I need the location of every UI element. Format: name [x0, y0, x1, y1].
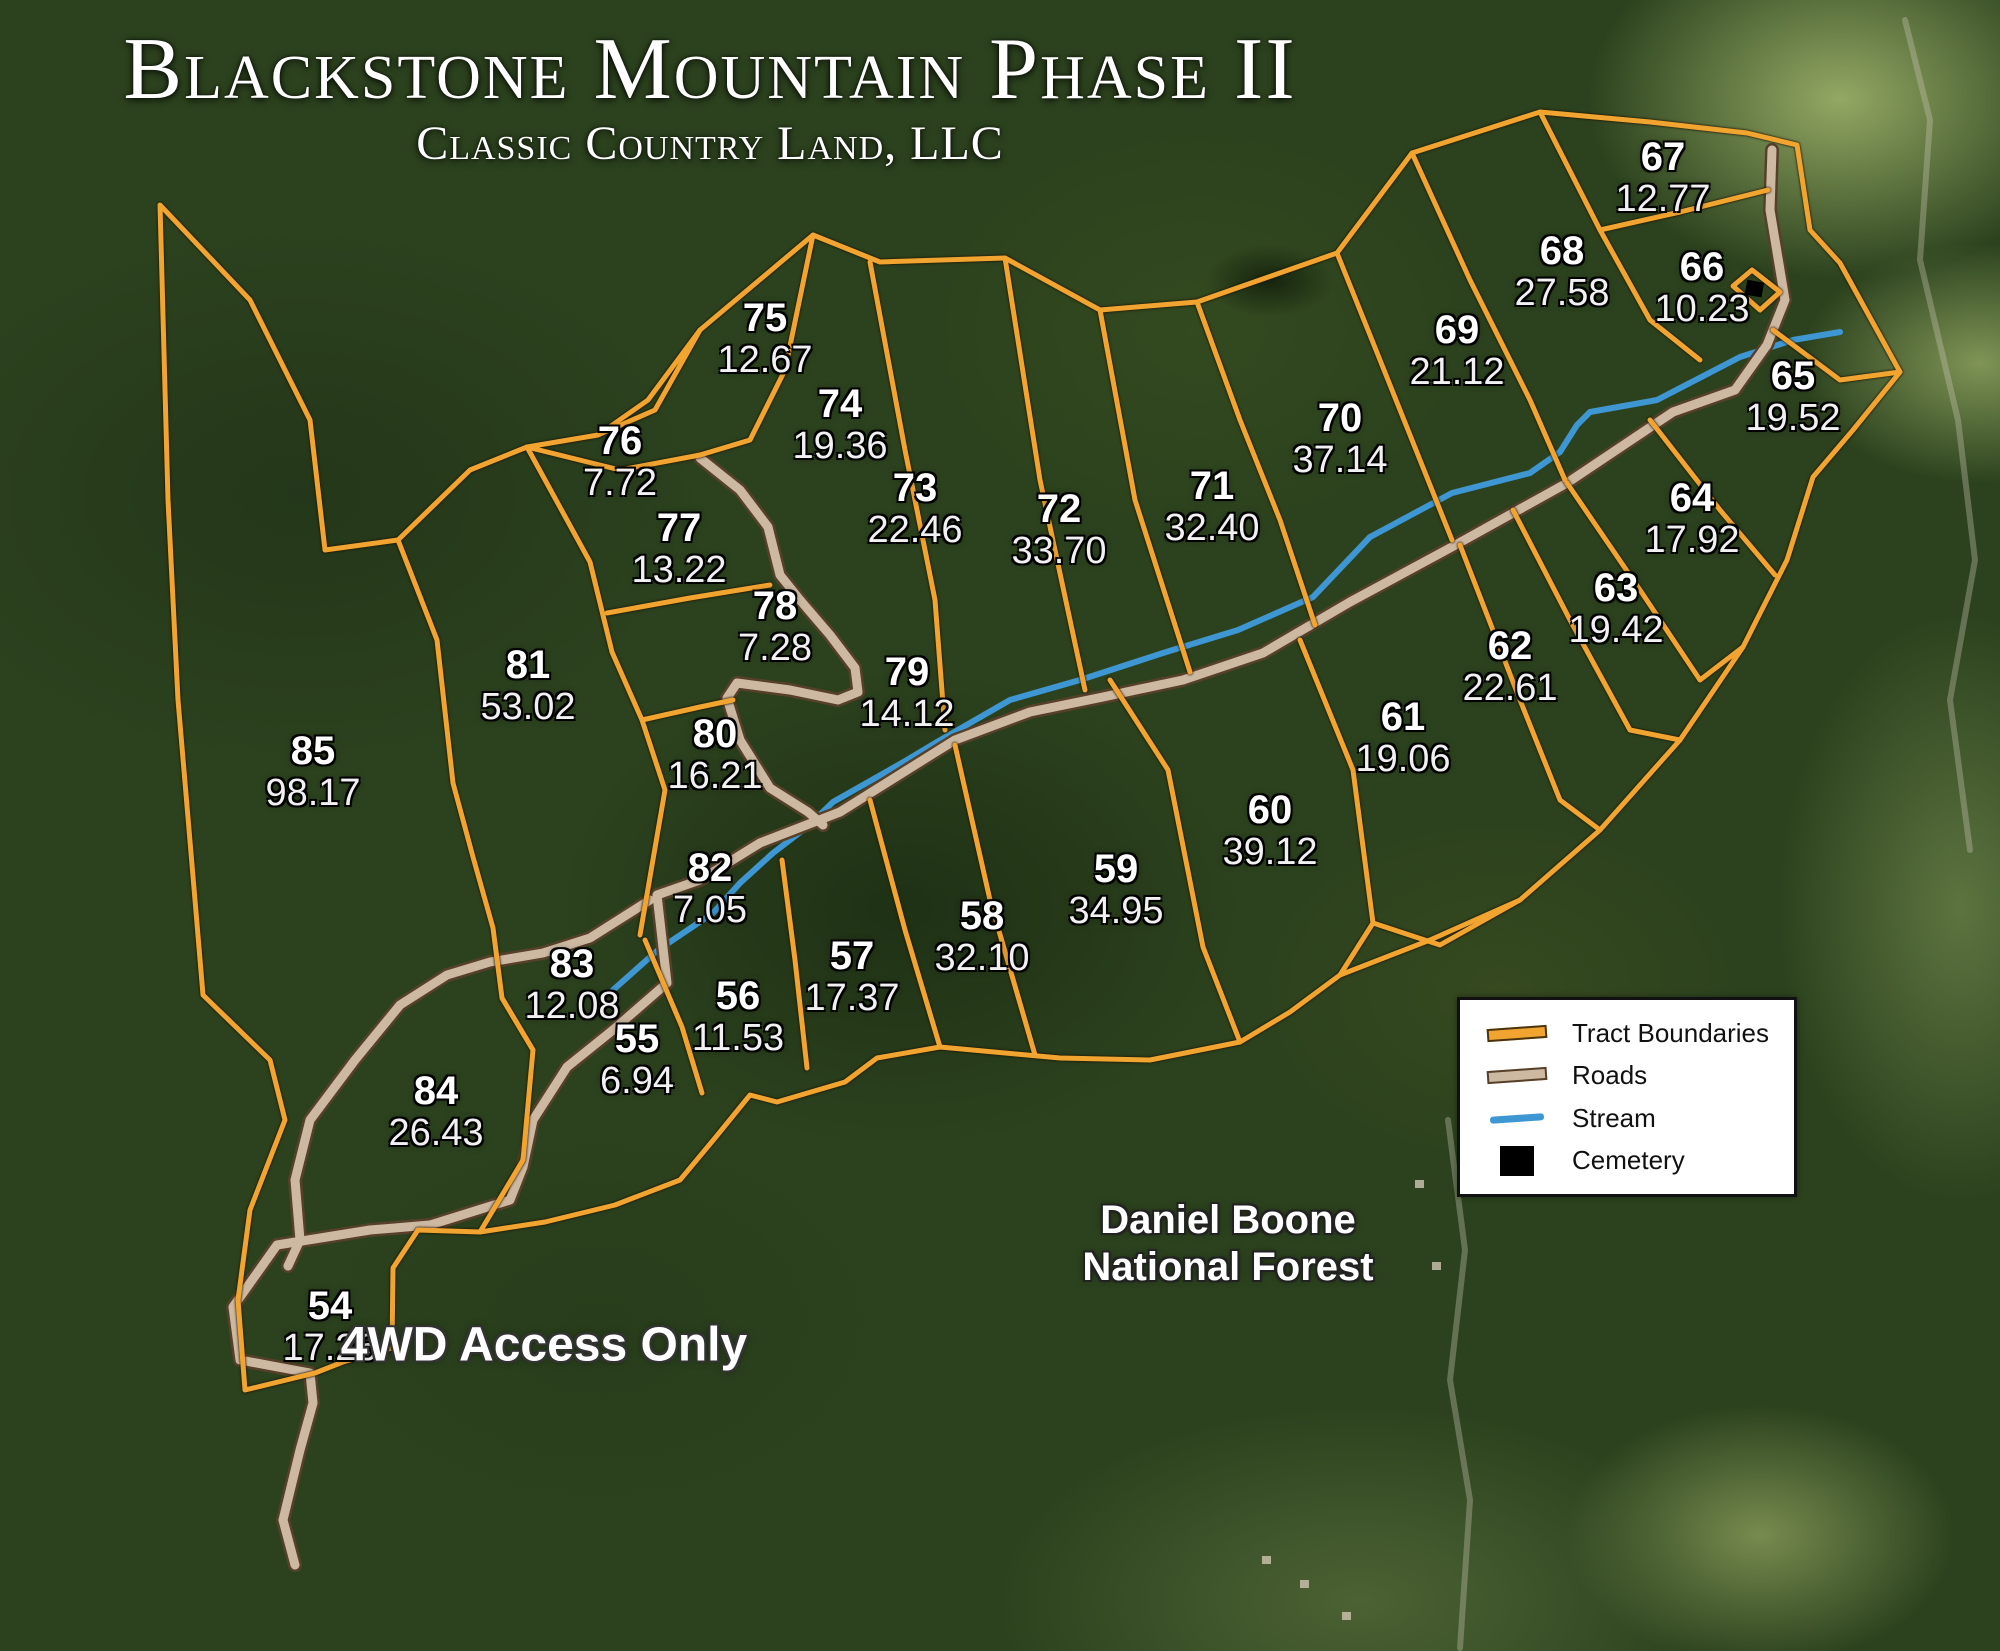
tract-label-72: 7233.70	[1011, 487, 1106, 573]
tract-label-77: 7713.22	[631, 506, 726, 592]
tract-label-79: 7914.12	[859, 650, 954, 736]
building-dot	[1262, 1556, 1271, 1564]
map-canvas: Blackstone Mountain Phase II Classic Cou…	[0, 0, 2000, 1651]
tract-label-85: 8598.17	[265, 729, 360, 815]
tract-label-84: 8426.43	[388, 1069, 483, 1155]
tract-label-80: 8016.21	[667, 712, 762, 798]
legend-label: Stream	[1572, 1103, 1656, 1134]
tract-label-71: 7132.40	[1164, 464, 1259, 550]
tract-label-70: 7037.14	[1292, 396, 1387, 482]
tract-label-68: 6827.58	[1514, 229, 1609, 315]
map-subtitle: Classic Country Land, LLC	[123, 116, 1296, 171]
tract-label-58: 5832.10	[934, 894, 1029, 980]
tract-label-69: 6921.12	[1409, 308, 1504, 394]
road-line-icon	[1486, 1069, 1548, 1082]
national-forest-line1: Daniel Boone	[1082, 1197, 1373, 1244]
legend-label: Cemetery	[1572, 1145, 1685, 1176]
tract-label-83: 8312.08	[524, 942, 619, 1028]
legend-row-stream: Stream	[1486, 1103, 1786, 1134]
national-forest-label: Daniel Boone National Forest	[1082, 1197, 1373, 1291]
legend-label: Tract Boundaries	[1572, 1018, 1769, 1049]
tract-label-78: 787.28	[738, 584, 812, 670]
tract-label-61: 6119.06	[1355, 695, 1450, 781]
building-dot	[1300, 1580, 1309, 1588]
tract-label-76: 767.72	[583, 419, 657, 505]
tract-label-81: 8153.02	[480, 643, 575, 729]
stream-line-icon	[1486, 1115, 1548, 1122]
map-title: Blackstone Mountain Phase II	[123, 26, 1296, 114]
tract-label-57: 5717.37	[804, 934, 899, 1020]
building-dot	[1342, 1612, 1351, 1620]
legend-label: Roads	[1572, 1060, 1647, 1091]
tract-label-67: 6712.77	[1615, 135, 1710, 221]
tract-boundary-line-icon	[1486, 1027, 1548, 1040]
tract-label-82: 827.05	[673, 846, 747, 932]
tract-label-59: 5934.95	[1068, 847, 1163, 933]
tract-label-66: 6610.23	[1654, 245, 1749, 331]
tract-label-73: 7322.46	[867, 466, 962, 552]
building-dot	[1415, 1180, 1424, 1188]
national-forest-line2: National Forest	[1082, 1244, 1373, 1291]
map-title-block: Blackstone Mountain Phase II Classic Cou…	[123, 26, 1296, 171]
tract-label-55: 556.94	[600, 1017, 674, 1103]
tract-label-63: 6319.42	[1568, 566, 1663, 652]
legend-row-cemetery: Cemetery	[1486, 1145, 1786, 1176]
legend-row-tract-boundaries: Tract Boundaries	[1486, 1018, 1786, 1049]
legend-row-roads: Roads	[1486, 1060, 1786, 1091]
tract-label-65: 6519.52	[1745, 354, 1840, 440]
cemetery-square-icon	[1486, 1146, 1548, 1176]
tract-label-62: 6222.61	[1462, 624, 1557, 710]
access-note-label: 4WD Access Only	[341, 1318, 747, 1373]
tract-label-60: 6039.12	[1222, 788, 1317, 874]
tract-label-74: 7419.36	[792, 382, 887, 468]
building-dot	[1432, 1262, 1441, 1270]
legend: Tract Boundaries Roads Stream Cemetery	[1457, 997, 1797, 1197]
tract-boundaries-layer	[160, 112, 1900, 1390]
tract-label-56: 5611.53	[692, 974, 784, 1060]
tract-label-75: 7512.67	[717, 296, 812, 382]
tract-label-64: 6417.92	[1644, 476, 1739, 562]
